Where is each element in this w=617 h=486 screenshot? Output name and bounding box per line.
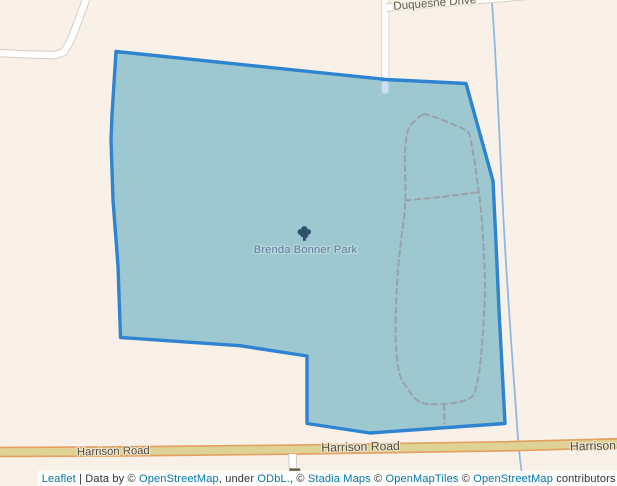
svg-text:Harrison Road: Harrison Road [77, 445, 150, 459]
svg-text:Brenda Bonner Park: Brenda Bonner Park [254, 244, 358, 256]
svg-text:Harrison Road: Harrison Road [321, 439, 400, 455]
svg-text:Harrison Road: Harrison Road [570, 438, 617, 454]
svg-text:Leaflet | Data by © OpenStreet: Leaflet | Data by © OpenStreetMap, under… [42, 473, 616, 485]
